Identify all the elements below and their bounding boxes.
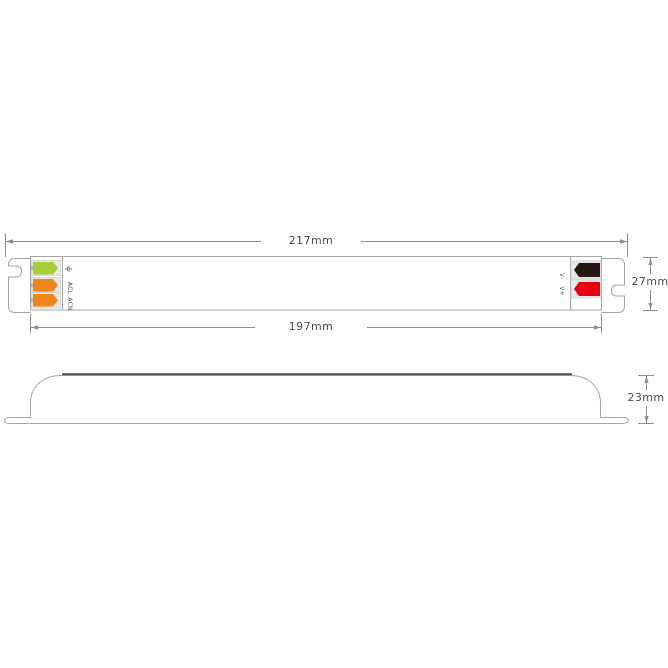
v-plus-wire xyxy=(574,282,600,296)
body-height-label: 27mm xyxy=(631,274,668,290)
acl-terminal-label: ACL xyxy=(66,282,72,294)
driver-body-top xyxy=(31,257,602,311)
arrowhead-down-icon xyxy=(644,416,648,423)
arrowhead-right-icon xyxy=(620,239,628,243)
cover-profile xyxy=(31,376,601,418)
overall-length-label: 217mm xyxy=(261,233,361,249)
v-minus-wire xyxy=(574,263,600,277)
mounting-ear-left xyxy=(9,259,31,313)
v-plus-terminal-label: V+ xyxy=(558,286,564,296)
arrowhead-up-icon xyxy=(644,376,648,383)
input-terminal-block xyxy=(31,261,61,309)
body-length-label: 197mm xyxy=(255,319,367,335)
arrowhead-up-icon xyxy=(648,258,652,265)
v-minus-terminal-label: V- xyxy=(558,273,564,279)
mounting-ear-right xyxy=(602,259,625,313)
side-view xyxy=(5,374,629,423)
dimension-drawing: 217mm 197mm 27mm 23mm ACL ACN V- V+ xyxy=(0,0,668,668)
acn-wire xyxy=(33,294,58,307)
profile-height-label: 23mm xyxy=(627,390,665,406)
arrowhead-right-icon xyxy=(594,325,602,329)
earth-wire xyxy=(33,262,58,275)
acl-wire xyxy=(33,279,58,292)
arrowhead-down-icon xyxy=(648,303,652,310)
base-plate-profile xyxy=(5,418,629,424)
arrowhead-left-icon xyxy=(31,325,39,329)
arrowhead-left-icon xyxy=(6,239,14,243)
acn-terminal-label: ACN xyxy=(66,297,72,310)
top-view xyxy=(9,257,625,313)
